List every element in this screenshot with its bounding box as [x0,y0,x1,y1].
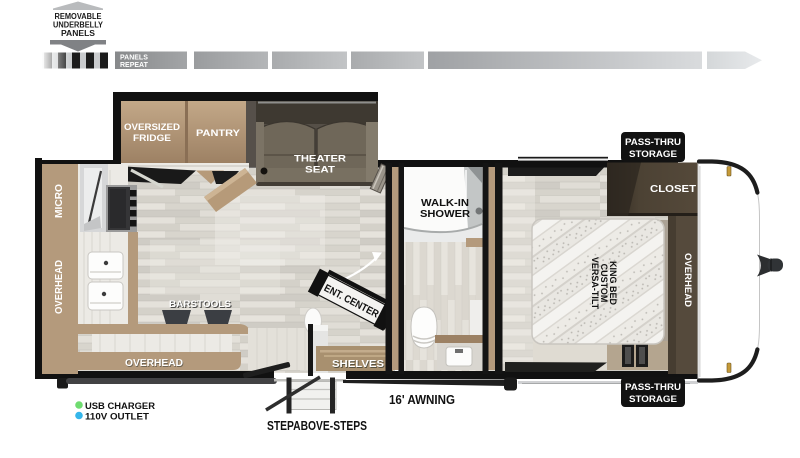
svg-text:CLOSET: CLOSET [650,184,696,195]
svg-text:SHELVES: SHELVES [332,359,384,370]
svg-text:SEAT: SEAT [305,165,335,176]
svg-text:USB CHARGER: USB CHARGER [85,401,155,412]
svg-text:OVERHEAD: OVERHEAD [125,358,183,369]
svg-text:REPEAT: REPEAT [120,62,149,69]
svg-text:OVERHEAD: OVERHEAD [54,260,65,314]
svg-text:BARSTOOLS: BARSTOOLS [169,299,231,309]
svg-text:PASS-THRU: PASS-THRU [625,137,681,148]
svg-text:STEPABOVE-STEPS: STEPABOVE-STEPS [267,419,367,433]
svg-text:FRIDGE: FRIDGE [133,133,171,144]
svg-text:PANELS: PANELS [120,55,148,62]
svg-text:STORAGE: STORAGE [629,394,677,405]
svg-text:STORAGE: STORAGE [629,149,677,160]
svg-text:WALK-IN: WALK-IN [421,198,469,209]
svg-text:PASS-THRU: PASS-THRU [625,382,681,393]
svg-text:SHOWER: SHOWER [420,209,471,220]
svg-text:MICRO: MICRO [54,184,65,218]
svg-text:PANTRY: PANTRY [196,128,241,139]
svg-text:THEATER: THEATER [294,154,346,165]
svg-text:OVERHEAD: OVERHEAD [682,253,693,307]
svg-text:110V OUTLET: 110V OUTLET [85,412,149,423]
svg-text:PANELS: PANELS [61,28,95,38]
svg-text:KING BEDCUSTOMVERSA-TILT: KING BEDCUSTOMVERSA-TILT [590,257,618,310]
svg-text:OVERSIZED: OVERSIZED [124,122,180,133]
svg-text:16' AWNING: 16' AWNING [389,392,455,407]
